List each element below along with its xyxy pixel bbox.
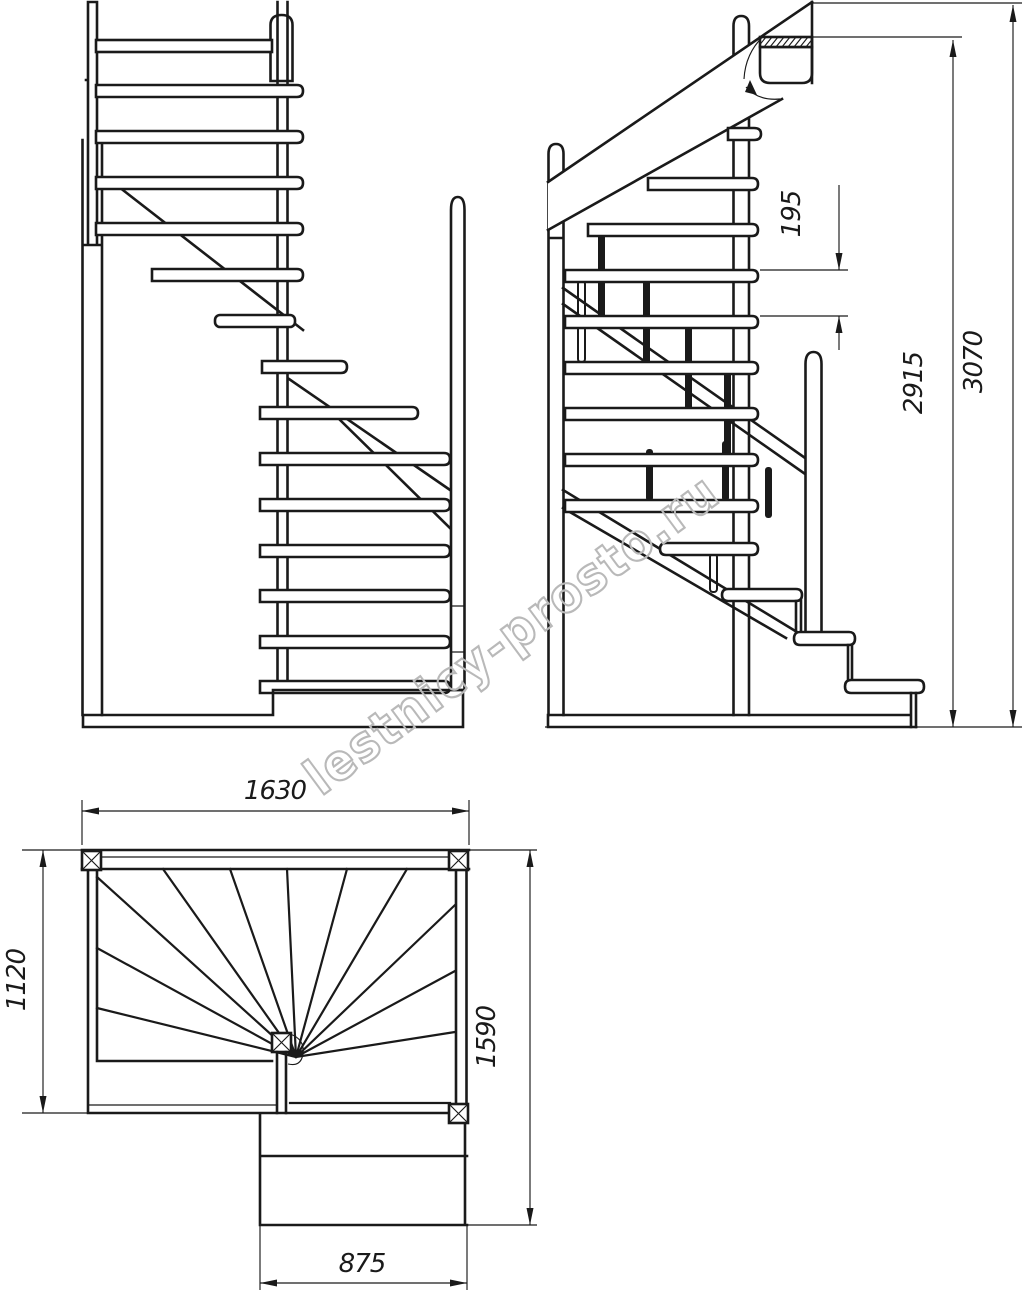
dim-floor-to-slab: 2915 (899, 351, 929, 414)
side-elevation-view (545, 2, 1022, 727)
dim-lower-flight-width: 875 (339, 1249, 386, 1279)
post-symbols (82, 851, 468, 1123)
blueprint-page: 195 2915 3070 (0, 0, 1026, 1296)
dim-plan-left-depth: 1120 (2, 948, 32, 1011)
plan-view: 1630 1120 1590 875 (2, 776, 537, 1290)
dim-plan-width: 1630 (244, 776, 307, 806)
dim-plan-right-depth: 1590 (472, 1005, 502, 1068)
dim-total-height: 3070 (959, 330, 989, 393)
dim-riser-height: 195 (777, 190, 807, 237)
side-dimensions: 195 2915 3070 (760, 3, 1022, 727)
front-elevation-view (83, 2, 465, 727)
staircase-technical-drawing: 195 2915 3070 (0, 0, 1026, 1296)
watermark-text: lestnicy-prosto.ru (294, 462, 730, 806)
